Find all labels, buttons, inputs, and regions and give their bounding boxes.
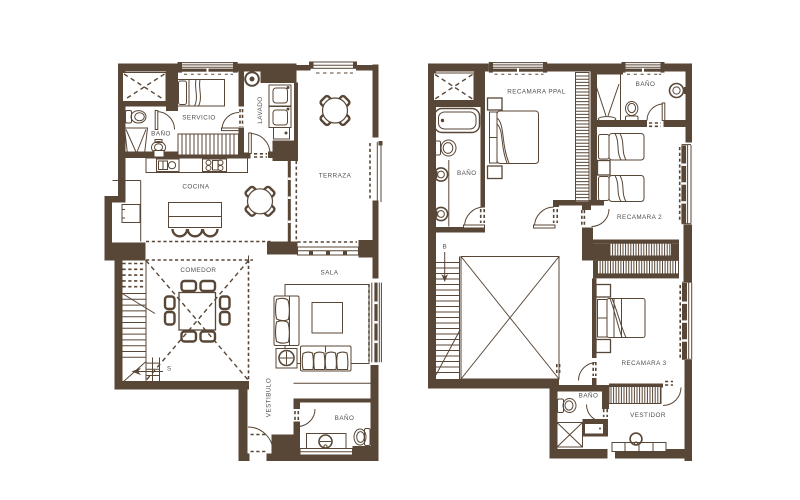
svg-text:BAÑO: BAÑO — [457, 168, 477, 177]
svg-text:SERVICIO: SERVICIO — [182, 115, 216, 122]
svg-text:VESTIDOR: VESTIDOR — [630, 412, 666, 419]
svg-text:COMEDOR: COMEDOR — [180, 267, 216, 274]
svg-text:COCINA: COCINA — [182, 184, 210, 191]
svg-text:BAÑO: BAÑO — [579, 390, 599, 399]
svg-text:S: S — [167, 366, 172, 373]
svg-text:RECAMARA 3: RECAMARA 3 — [621, 360, 666, 367]
svg-text:BAÑO: BAÑO — [636, 79, 656, 88]
svg-text:RECAMARA PPAL: RECAMARA PPAL — [507, 88, 566, 95]
svg-text:BAÑO: BAÑO — [335, 413, 355, 422]
svg-text:B: B — [443, 244, 448, 251]
svg-text:SALA: SALA — [321, 269, 339, 276]
svg-text:TERRAZA: TERRAZA — [319, 172, 352, 179]
svg-text:BAÑO: BAÑO — [151, 128, 171, 137]
svg-text:LAVADO: LAVADO — [257, 96, 264, 123]
svg-text:RECAMARA 2: RECAMARA 2 — [617, 214, 662, 221]
svg-text:VESTIBULO: VESTIBULO — [266, 378, 273, 417]
